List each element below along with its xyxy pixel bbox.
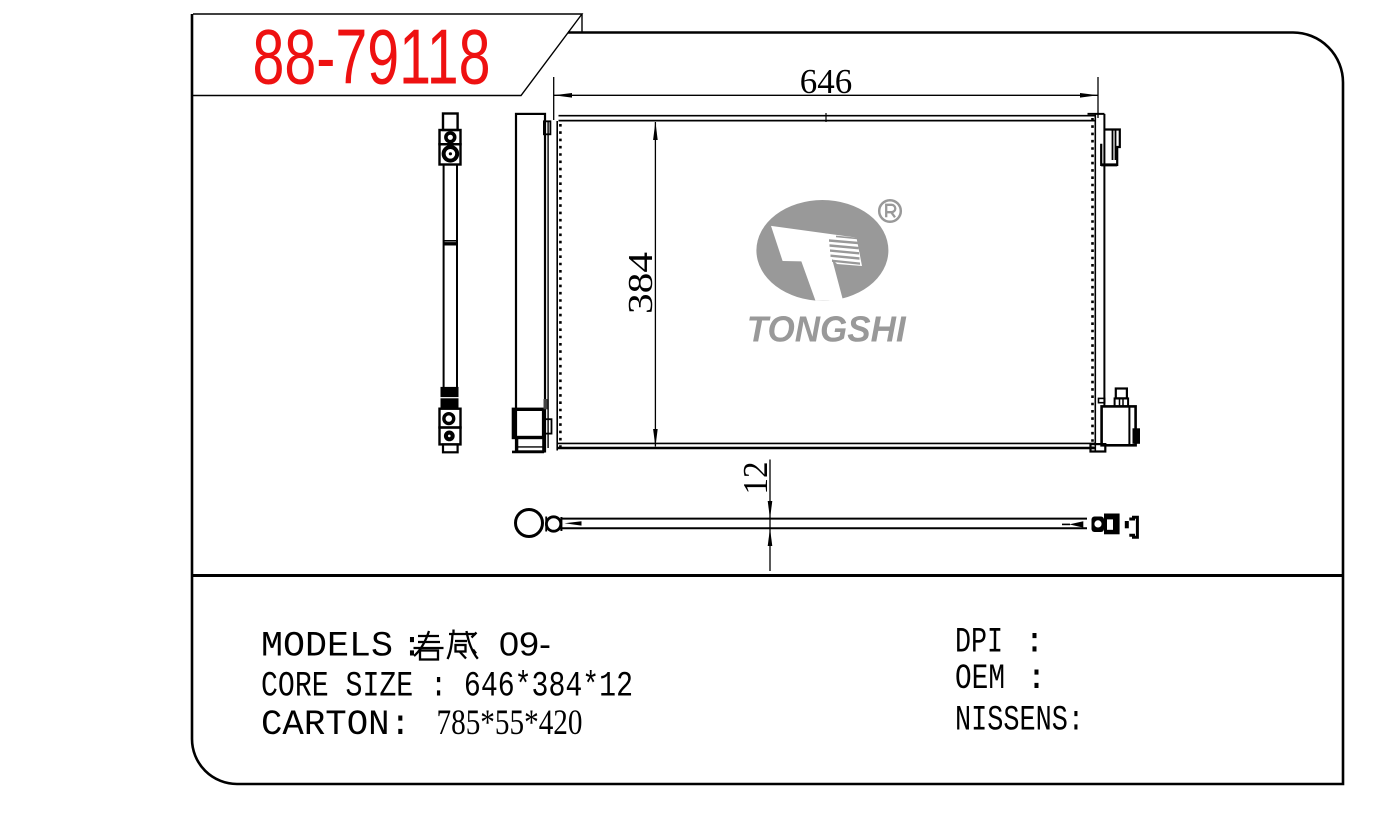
svg-text:785*55*420: 785*55*420 xyxy=(437,702,583,742)
svg-text:09-: 09- xyxy=(499,626,551,663)
svg-text:NISSENS:: NISSENS: xyxy=(955,701,1084,741)
svg-text:384: 384 xyxy=(621,252,660,314)
svg-text:88-79118: 88-79118 xyxy=(253,13,491,101)
svg-text:DPI: DPI xyxy=(955,623,1003,663)
svg-text:12: 12 xyxy=(736,462,775,495)
svg-text:646: 646 xyxy=(800,62,853,101)
svg-text:CARTON:: CARTON: xyxy=(261,705,411,745)
svg-text::: : xyxy=(1026,659,1047,699)
svg-text::: : xyxy=(1024,623,1045,663)
svg-text:OEM: OEM xyxy=(955,659,1005,699)
svg-text:CORE SIZE : 646*384*12: CORE SIZE : 646*384*12 xyxy=(261,667,633,707)
svg-text:TONGSHI: TONGSHI xyxy=(747,309,907,350)
svg-text:MODELS: MODELS xyxy=(261,627,393,667)
